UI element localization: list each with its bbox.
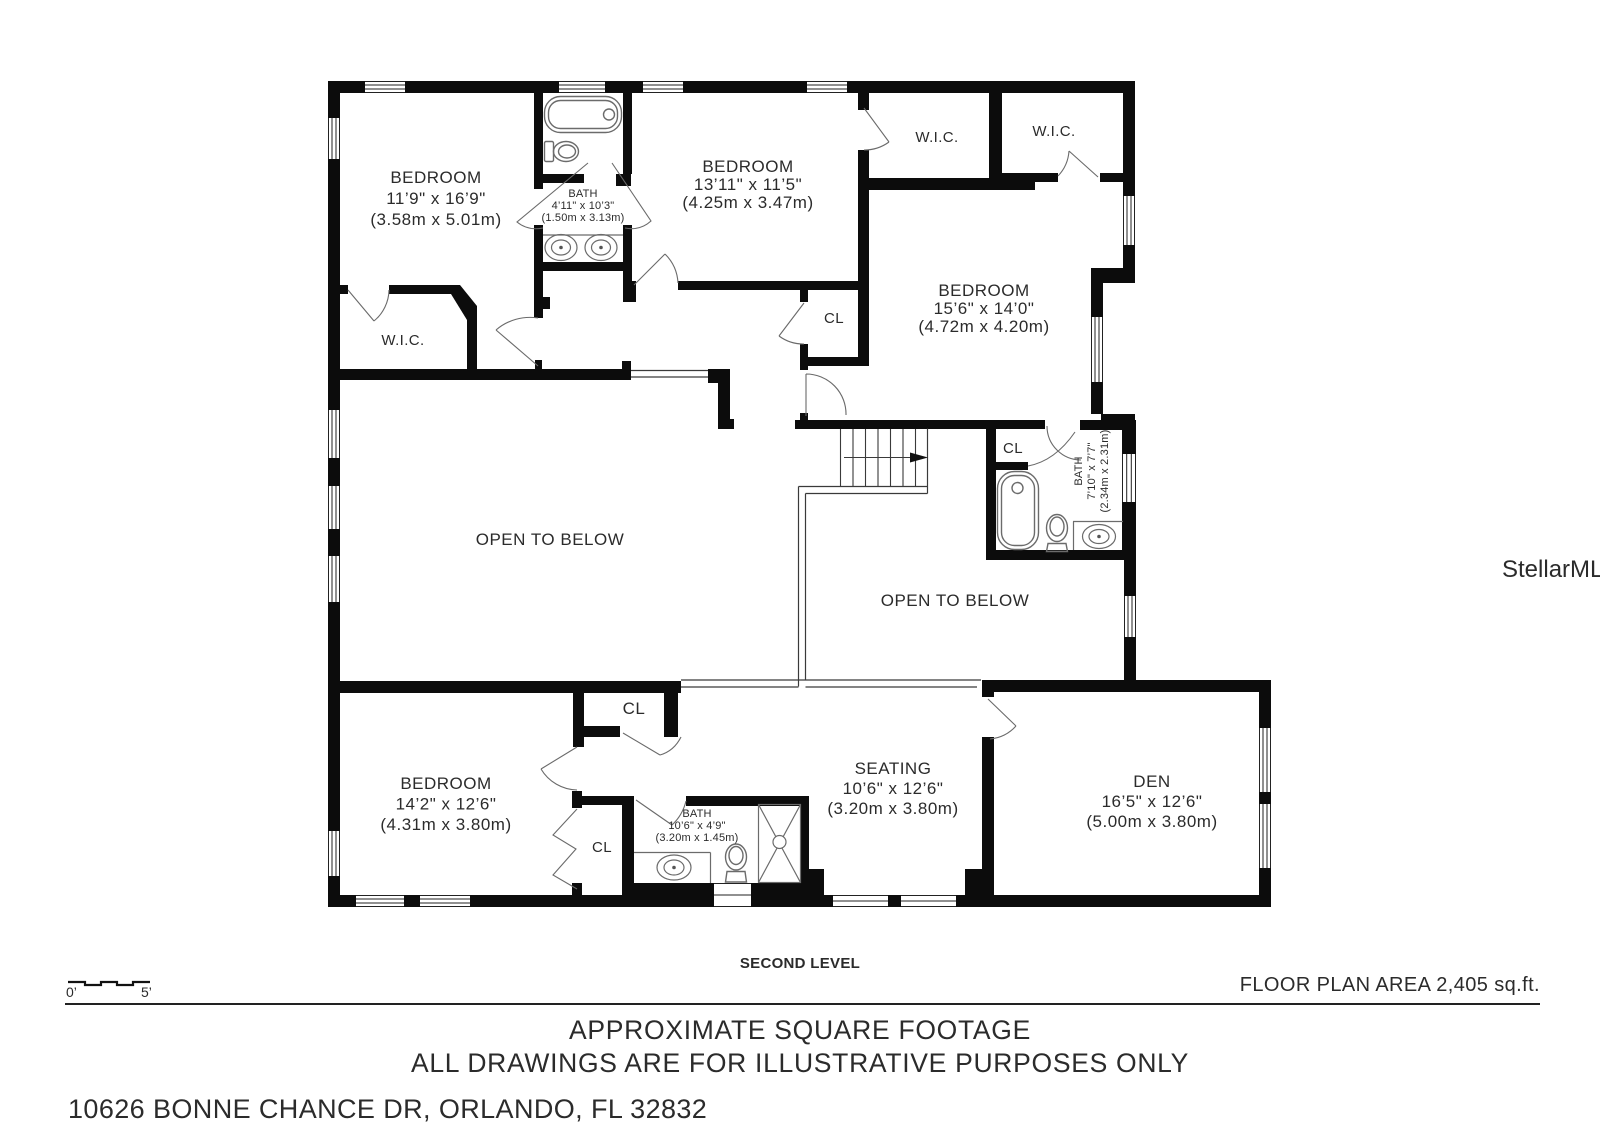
svg-text:BATH: BATH	[568, 188, 597, 200]
svg-text:5’: 5’	[141, 984, 152, 1000]
svg-text:(4.25m x 3.47m): (4.25m x 3.47m)	[682, 193, 813, 212]
svg-text:BEDROOM: BEDROOM	[938, 281, 1029, 300]
svg-text:CL: CL	[623, 699, 646, 718]
svg-text:13’11" x 11’5": 13’11" x 11’5"	[694, 175, 802, 194]
svg-text:BATH: BATH	[682, 808, 711, 820]
svg-text:4’11" x 10’3": 4’11" x 10’3"	[552, 200, 615, 212]
svg-text:(1.50m x 3.13m): (1.50m x 3.13m)	[541, 212, 624, 224]
svg-text:15’6" x 14’0": 15’6" x 14’0"	[934, 299, 1035, 318]
svg-text:(3.20m x 3.80m): (3.20m x 3.80m)	[827, 799, 958, 818]
svg-text:11’9" x 16’9": 11’9" x 16’9"	[386, 189, 486, 208]
svg-text:(2.34m x 2.31m): (2.34m x 2.31m)	[1099, 429, 1111, 512]
svg-text:BATH: BATH	[1073, 456, 1085, 485]
svg-text:(4.31m x 3.80m): (4.31m x 3.80m)	[380, 815, 511, 834]
svg-text:FLOOR PLAN AREA 2,405 sq.ft.: FLOOR PLAN AREA 2,405 sq.ft.	[1240, 974, 1540, 996]
svg-text:OPEN TO BELOW: OPEN TO BELOW	[881, 591, 1030, 610]
svg-text:SEATING: SEATING	[855, 759, 932, 778]
svg-text:(3.20m x 1.45m): (3.20m x 1.45m)	[655, 832, 738, 844]
svg-text:7’10" x 7’7": 7’10" x 7’7"	[1086, 442, 1098, 499]
svg-text:CL: CL	[824, 310, 844, 327]
svg-text:StellarMLS: StellarMLS	[1502, 556, 1600, 583]
svg-text:DEN: DEN	[1133, 772, 1170, 791]
svg-text:10’6" x 4’9": 10’6" x 4’9"	[668, 820, 725, 832]
svg-text:16’5" x 12’6": 16’5" x 12’6"	[1102, 792, 1203, 811]
svg-text:10’6" x 12’6": 10’6" x 12’6"	[843, 779, 944, 798]
svg-text:0’: 0’	[66, 984, 77, 1000]
svg-text:ALL DRAWINGS ARE FOR ILLUSTRAT: ALL DRAWINGS ARE FOR ILLUSTRATIVE PURPOS…	[411, 1048, 1189, 1078]
svg-text:10626 BONNE CHANCE DR, ORLANDO: 10626 BONNE CHANCE DR, ORLANDO, FL 32832	[68, 1094, 707, 1124]
svg-text:BEDROOM: BEDROOM	[390, 168, 481, 187]
svg-text:OPEN TO BELOW: OPEN TO BELOW	[476, 530, 625, 549]
svg-text:BEDROOM: BEDROOM	[400, 774, 491, 793]
svg-text:(4.72m x 4.20m): (4.72m x 4.20m)	[918, 317, 1049, 336]
svg-text:(5.00m x 3.80m): (5.00m x 3.80m)	[1086, 812, 1217, 831]
svg-text:W.I.C.: W.I.C.	[915, 129, 958, 146]
svg-text:14’2" x 12’6": 14’2" x 12’6"	[396, 795, 497, 814]
svg-text:W.I.C.: W.I.C.	[381, 332, 424, 349]
svg-text:CL: CL	[1003, 440, 1023, 457]
svg-text:BEDROOM: BEDROOM	[702, 157, 793, 176]
svg-text:W.I.C.: W.I.C.	[1032, 123, 1075, 140]
svg-text:(3.58m x 5.01m): (3.58m x 5.01m)	[370, 210, 501, 229]
svg-text:APPROXIMATE SQUARE FOOTAGE: APPROXIMATE SQUARE FOOTAGE	[569, 1015, 1031, 1045]
svg-text:SECOND LEVEL: SECOND LEVEL	[740, 955, 860, 972]
svg-text:CL: CL	[592, 839, 612, 856]
